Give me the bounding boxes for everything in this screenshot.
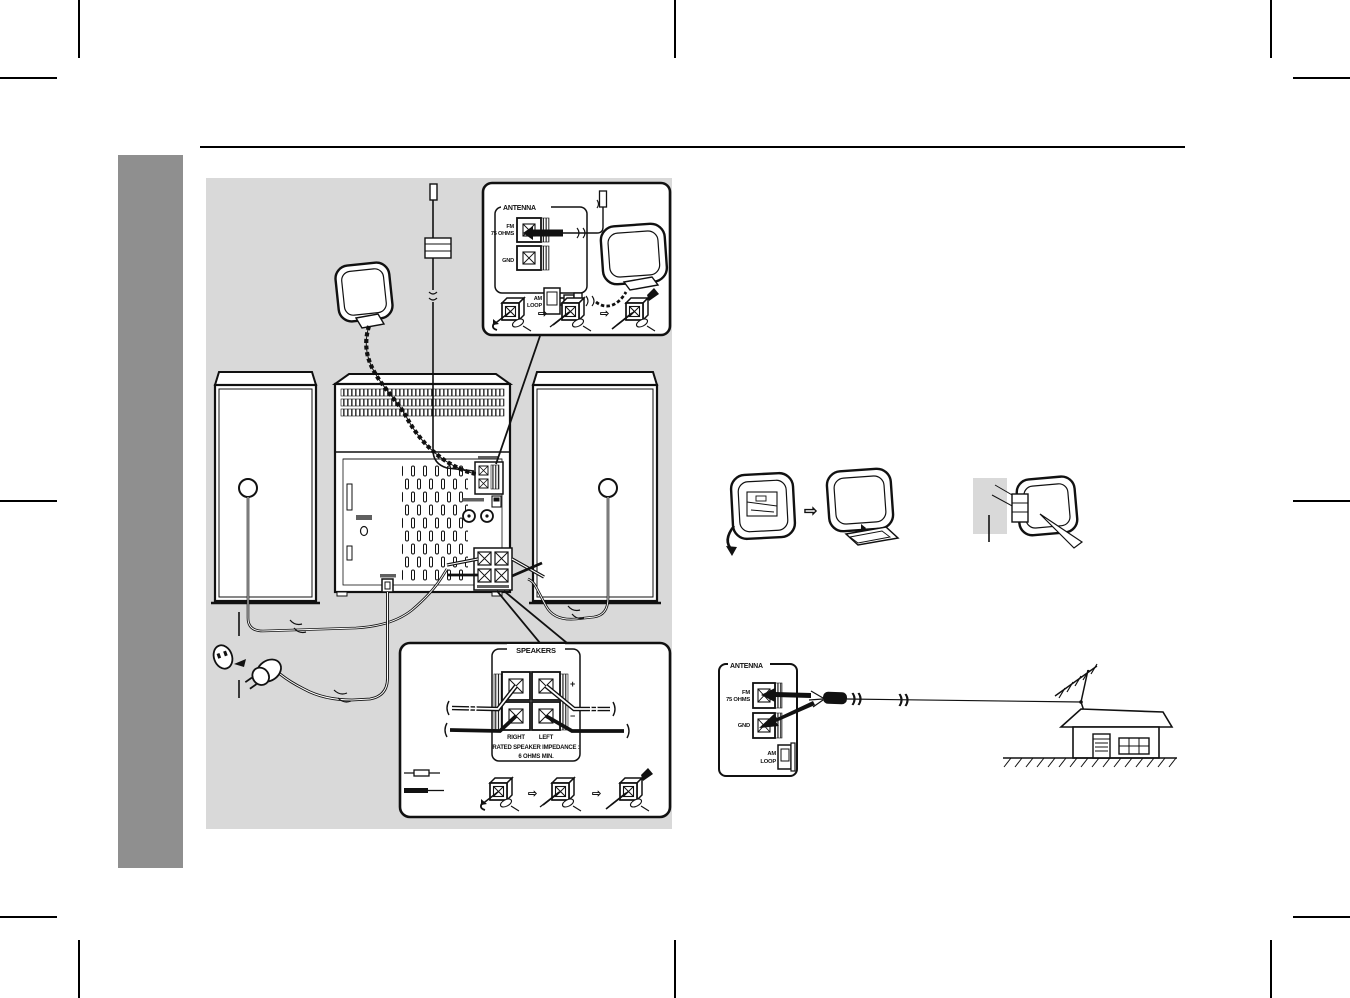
step-arrow-icon: ⇨	[528, 788, 538, 800]
crop-mark	[0, 500, 57, 502]
crop-mark	[0, 916, 57, 918]
gnd-label: GND	[738, 723, 750, 729]
sidebar-accent-bar	[118, 155, 183, 868]
am-antenna-assembly-diagram: ⇨	[718, 462, 1098, 572]
am-antenna-wall-mount	[973, 475, 1082, 548]
ac-input-socket	[380, 574, 396, 592]
gnd-label: GND	[502, 258, 514, 264]
fm-ohms-label: 75 OHMS	[726, 697, 750, 703]
wall-outlet	[210, 612, 246, 698]
fm-outdoor-antenna-diagram: ANTENNA FM 75 OHMS GND AM LOOP	[715, 652, 1185, 782]
impedance-note-line2: 6 OHMS MIN.	[518, 754, 554, 760]
house-door	[1093, 734, 1110, 758]
antenna-terminal-block	[475, 456, 503, 494]
power-plug	[242, 655, 285, 694]
speakers-inset-title: SPEAKERS	[516, 646, 556, 655]
antenna-cable	[759, 688, 1083, 728]
header-rule	[200, 146, 1185, 148]
wall	[973, 478, 1007, 534]
step-arrow-icon: ⇨	[600, 308, 610, 320]
crop-mark	[1293, 500, 1350, 502]
am-antenna-assembled	[826, 468, 898, 545]
step-arrow-icon: ⇨	[538, 308, 548, 320]
main-connection-diagram: ANTENNA FM 75 OHMS GND AM LOOP	[206, 178, 672, 829]
crop-mark	[0, 77, 57, 79]
am-label: AM	[767, 751, 776, 757]
antenna-panel-title: ANTENNA	[730, 663, 763, 670]
antenna-terminal-inset: ANTENNA FM 75 OHMS GND AM LOOP	[483, 183, 670, 335]
minus-label: −	[570, 711, 575, 721]
plug-direction-arrow	[234, 659, 246, 667]
rear-label	[356, 515, 372, 520]
am-loop-label: LOOP	[760, 759, 776, 765]
crop-mark	[674, 0, 676, 58]
am-antenna-fold-step	[726, 472, 796, 556]
manual-page: { "page": { "bg": "#ffffff", "line_color…	[0, 0, 1350, 998]
left-speaker	[211, 372, 320, 603]
am-loop-antenna	[334, 261, 394, 328]
right-channel-label: RIGHT	[507, 735, 525, 741]
speaker-terminal-block	[474, 548, 512, 590]
speaker-terminal-inset: SPEAKERS + − RIGHT LEFT RATED SPEAKER IM	[400, 643, 670, 817]
left-channel-label: LEFT	[539, 735, 554, 741]
crop-mark	[674, 940, 676, 998]
house	[1061, 709, 1172, 758]
right-speaker	[529, 372, 661, 603]
am-label: AM	[534, 296, 543, 302]
plus-label: +	[570, 679, 575, 689]
crop-mark	[78, 940, 80, 998]
crop-mark	[1293, 916, 1350, 918]
outdoor-antenna	[1055, 664, 1097, 714]
ground-hatch	[1003, 758, 1177, 767]
crop-mark	[1270, 940, 1272, 998]
fm-label: FM	[506, 224, 514, 230]
speaker-terminal	[599, 479, 617, 497]
step-arrow-icon: ⇨	[592, 788, 602, 800]
ac-power-cord	[280, 592, 388, 702]
impedance-note-line1: RATED SPEAKER IMPEDANCE :	[492, 745, 579, 751]
antenna-terminal-panel: ANTENNA FM 75 OHMS GND AM LOOP	[719, 660, 797, 776]
crop-mark	[1293, 77, 1350, 79]
crop-mark	[78, 0, 80, 58]
assembly-arrow-icon: ⇨	[804, 503, 818, 520]
fold-arrow	[726, 546, 737, 556]
main-unit-rear	[335, 374, 512, 596]
antenna-inset-title: ANTENNA	[503, 205, 536, 212]
speaker-terminal	[239, 479, 257, 497]
fm-ohms-label: 75 OHMS	[491, 231, 515, 237]
crop-mark	[1270, 0, 1272, 58]
fm-label: FM	[742, 690, 750, 696]
